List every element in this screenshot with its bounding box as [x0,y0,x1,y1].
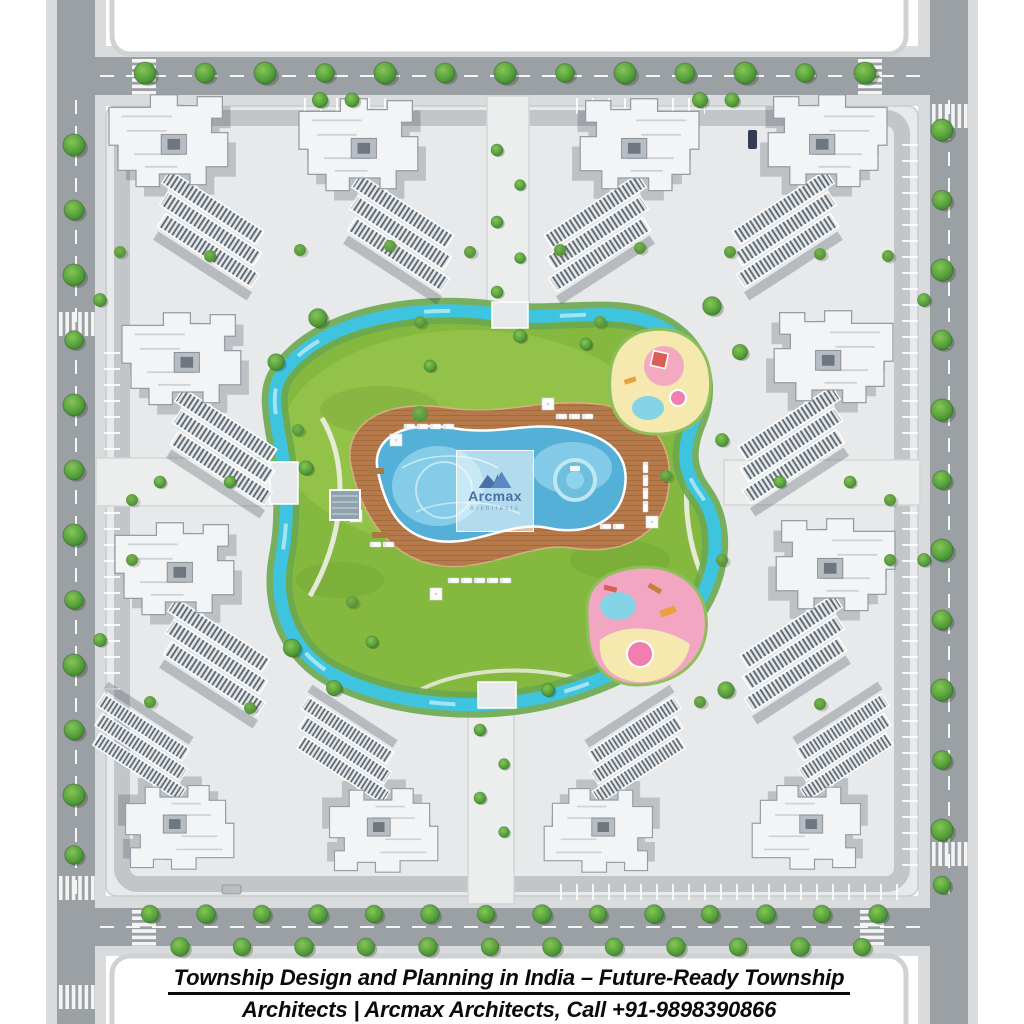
spa-circle [555,460,595,500]
watermark-brand: Arcmax [468,489,522,504]
watermark: Arcmax Architects [456,450,534,532]
caption-line-2: Architects | Arcmax Architects, Call +91… [112,995,906,1024]
page-margin-left [0,0,46,1024]
kids-playground-north [610,329,711,434]
caption: Township Design and Planning in India – … [112,963,906,1024]
white-parcel-top [112,0,906,54]
watermark-logo-icon [476,470,514,488]
kids-playground-south [587,567,706,685]
page-margin-right [978,0,1024,1024]
watermark-subtitle: Architects [470,505,520,513]
caption-line-1: Township Design and Planning in India – … [112,963,906,995]
township-master-plan-render: Arcmax Architects Township Design and Pl… [0,0,1024,1024]
